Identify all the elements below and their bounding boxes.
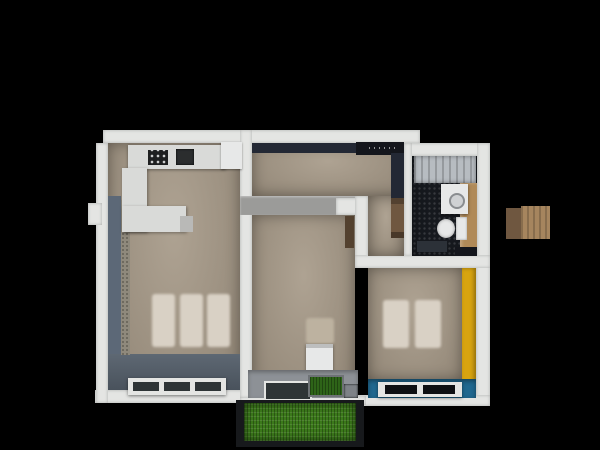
window-pane [385, 385, 417, 393]
grass-patch[interactable] [244, 403, 356, 441]
wood-box-face [521, 206, 550, 239]
grass-planter[interactable] [308, 375, 344, 397]
bedroom-yellow-wall [462, 268, 476, 384]
bed-panel-1[interactable] [152, 294, 175, 347]
bed-panel-3[interactable] [207, 294, 230, 347]
hall-shelf[interactable] [391, 198, 404, 238]
tall-cabinet[interactable] [221, 142, 242, 169]
washer-door-icon [449, 193, 465, 209]
bath-mat[interactable] [417, 241, 447, 252]
room-middle[interactable] [252, 215, 355, 388]
wall-left-notch [88, 203, 102, 225]
sill-box[interactable] [344, 384, 358, 398]
wall-kitchen-hall [240, 130, 252, 398]
kitchen-sink[interactable] [176, 149, 194, 165]
bath-dark-step [455, 247, 477, 256]
bed-panel-2[interactable] [180, 294, 203, 347]
bed-panel-right-2[interactable] [415, 300, 441, 348]
floor-light-patch [306, 318, 334, 344]
window-pane [423, 385, 455, 393]
bed-panel-right-1[interactable] [383, 300, 409, 348]
wood-box-side [506, 208, 521, 239]
cooktop[interactable] [148, 150, 168, 165]
window-right-bedroom[interactable] [378, 382, 462, 397]
left-wall-inner-face [108, 196, 121, 354]
window-pane [195, 382, 220, 392]
toilet-tank [456, 217, 467, 240]
loose-wood-box[interactable] [506, 206, 550, 239]
middle-room-door[interactable] [345, 216, 354, 248]
window-left-room[interactable] [128, 378, 226, 395]
wall-bathroom-left [404, 143, 412, 256]
island-counter-horizontal[interactable] [122, 206, 186, 232]
bathtub[interactable] [414, 156, 476, 183]
wall-right-lower [476, 257, 490, 405]
wall-left [96, 143, 108, 403]
toilet-bowl [437, 219, 455, 238]
wall-bedroom-top [355, 255, 490, 268]
window-pane [133, 382, 158, 392]
washing-machine[interactable] [441, 184, 468, 214]
wall-right-upper [477, 143, 490, 260]
balcony-door-glass[interactable] [264, 381, 312, 401]
floorplan-scene [0, 0, 600, 450]
island-counter-step [180, 216, 193, 232]
toilet[interactable] [437, 217, 467, 240]
window-pane [164, 382, 189, 392]
